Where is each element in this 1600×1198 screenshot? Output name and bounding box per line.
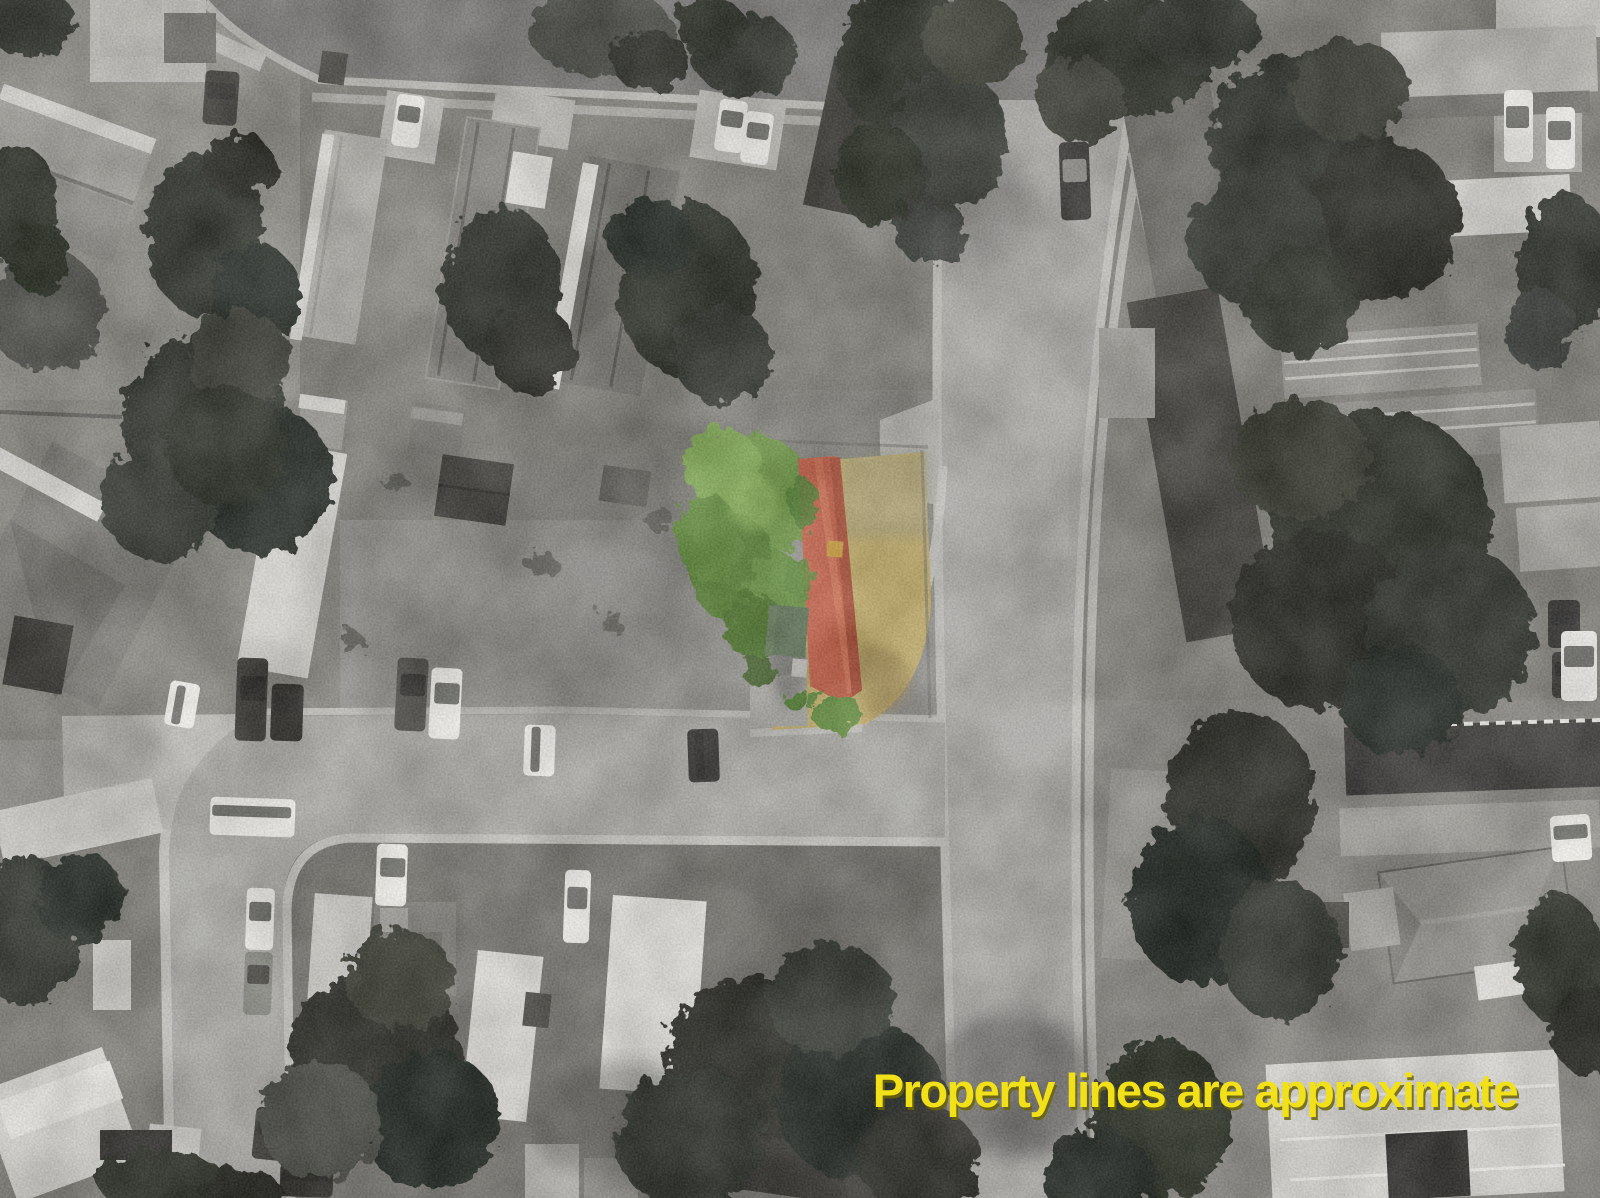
svg-text:Property lines are approximate: Property lines are approximate xyxy=(873,1064,1518,1117)
